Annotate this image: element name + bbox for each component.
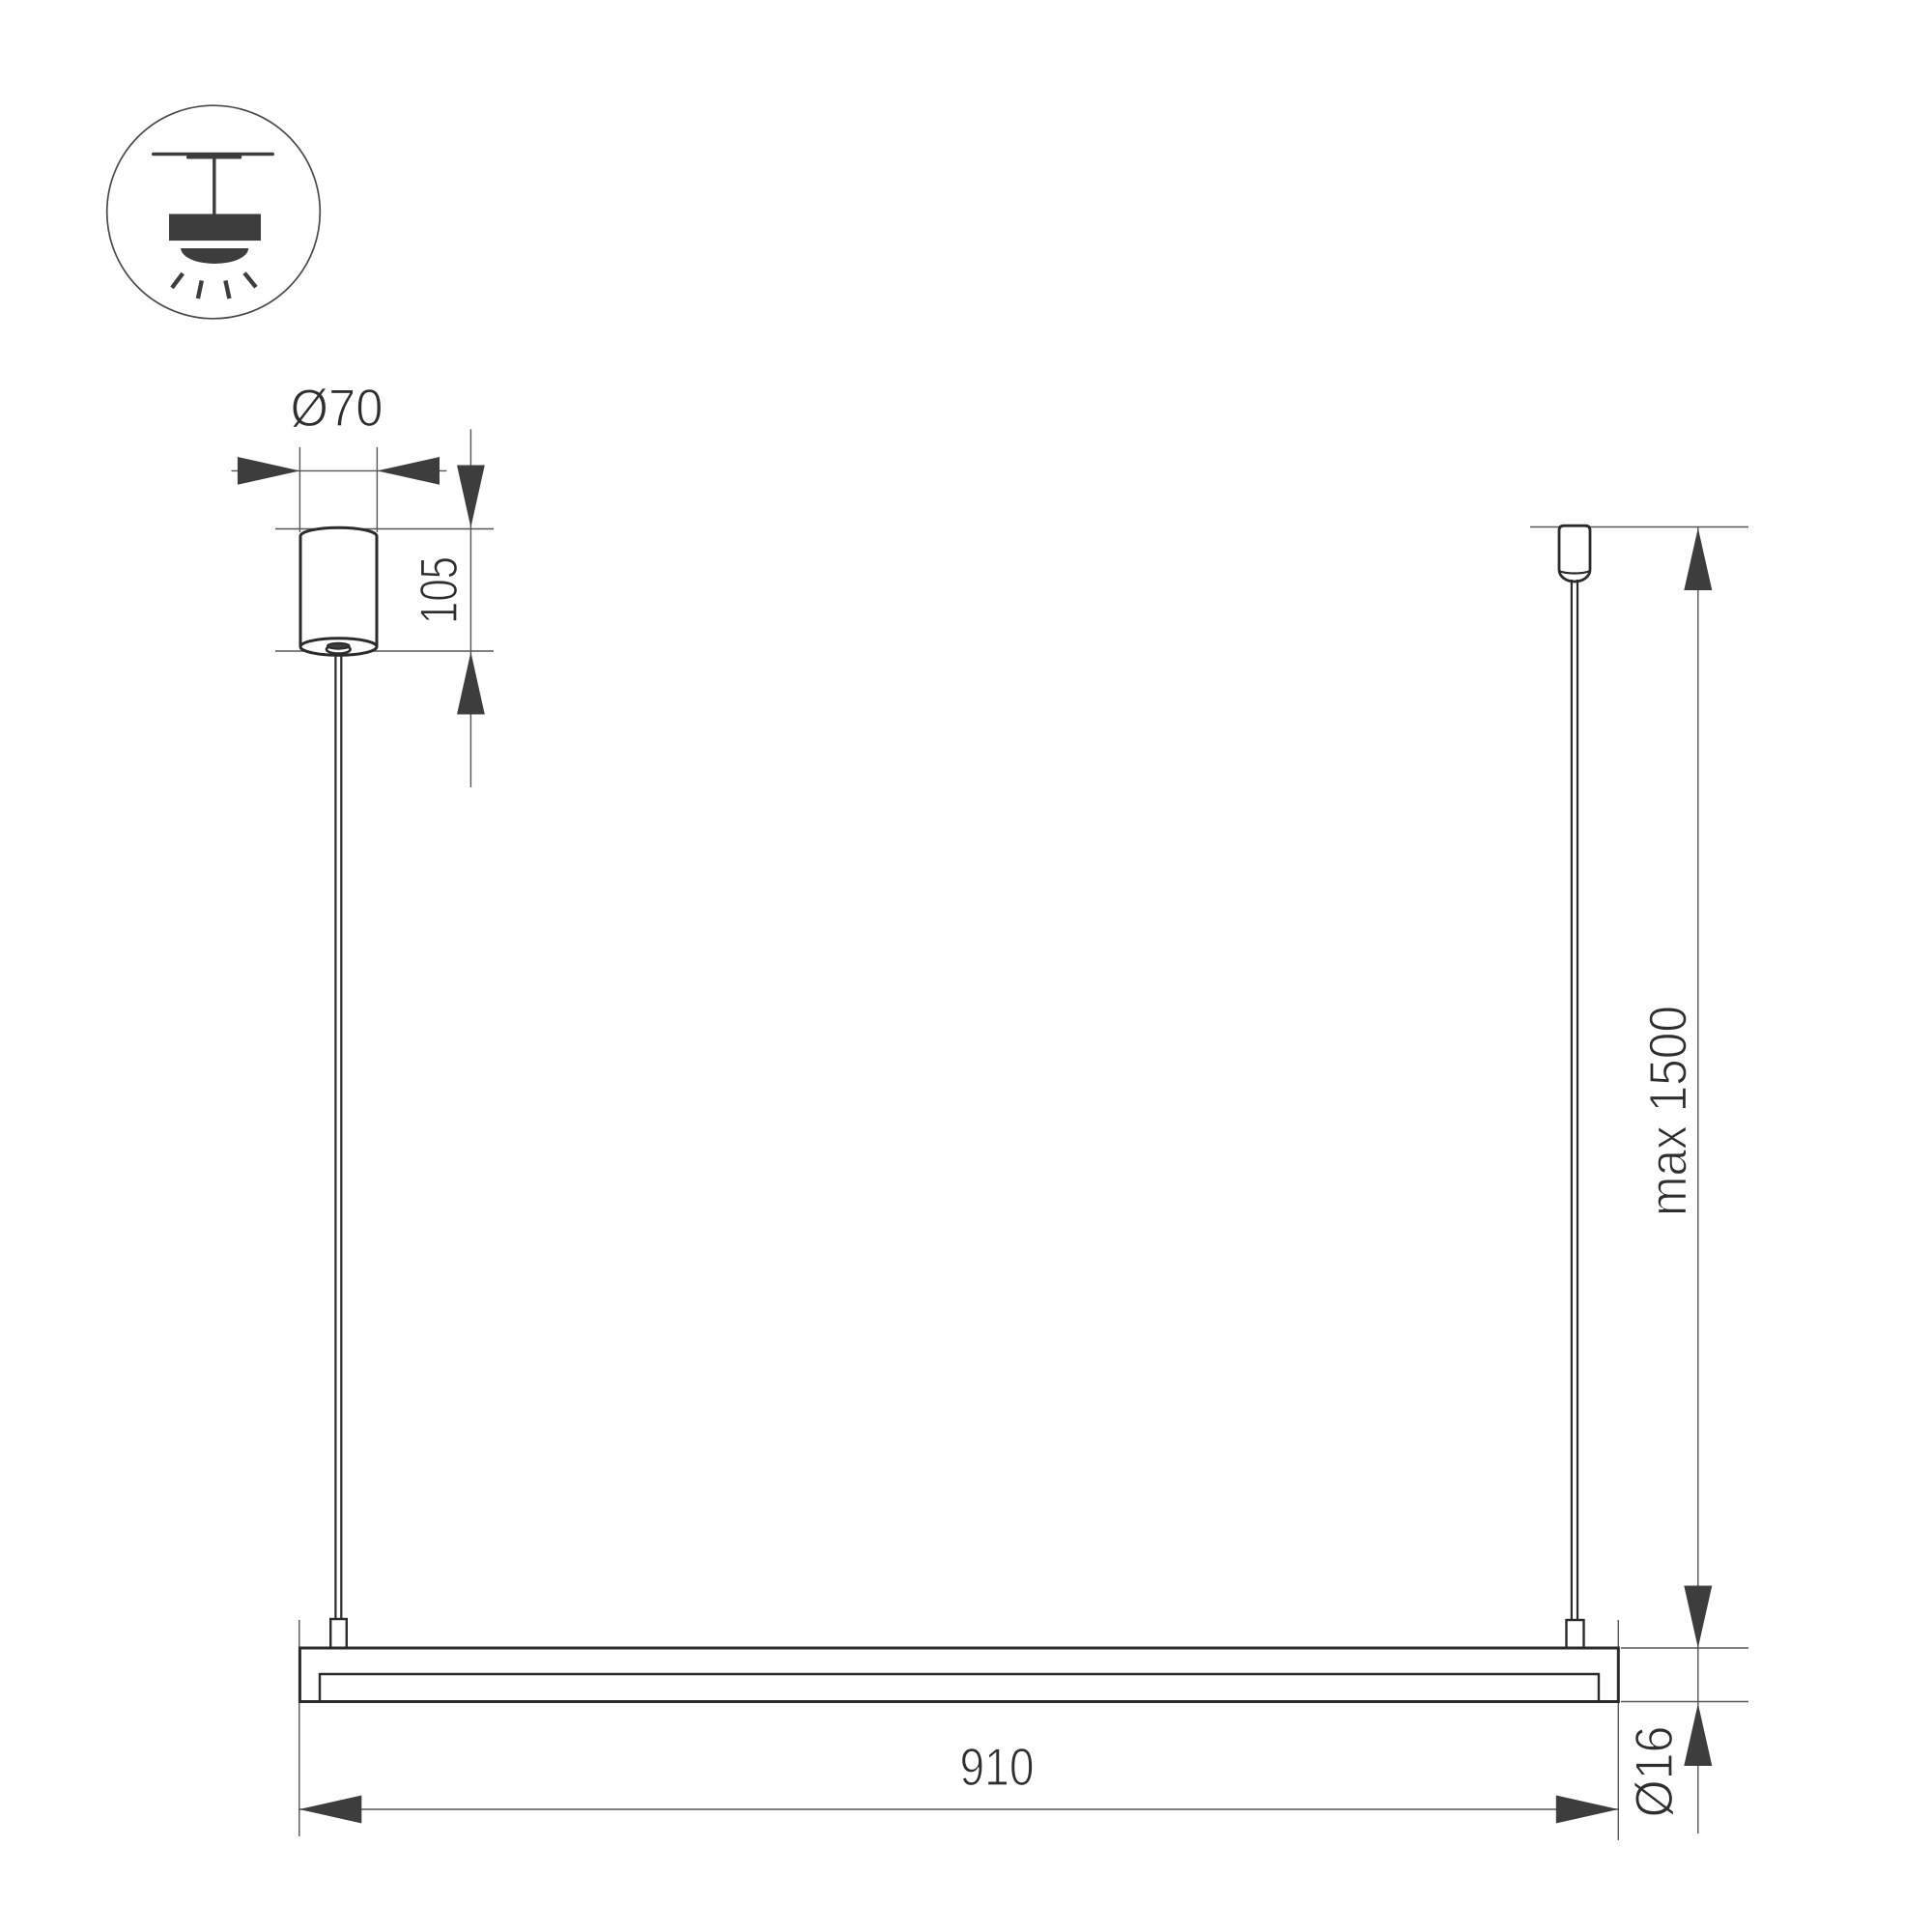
svg-text:Ø70: Ø70: [291, 378, 384, 438]
svg-text:Ø16: Ø16: [1624, 1726, 1684, 1818]
svg-text:910: 910: [960, 1737, 1035, 1797]
svg-text:105: 105: [409, 556, 469, 624]
svg-text:max 1500: max 1500: [1638, 1006, 1698, 1216]
